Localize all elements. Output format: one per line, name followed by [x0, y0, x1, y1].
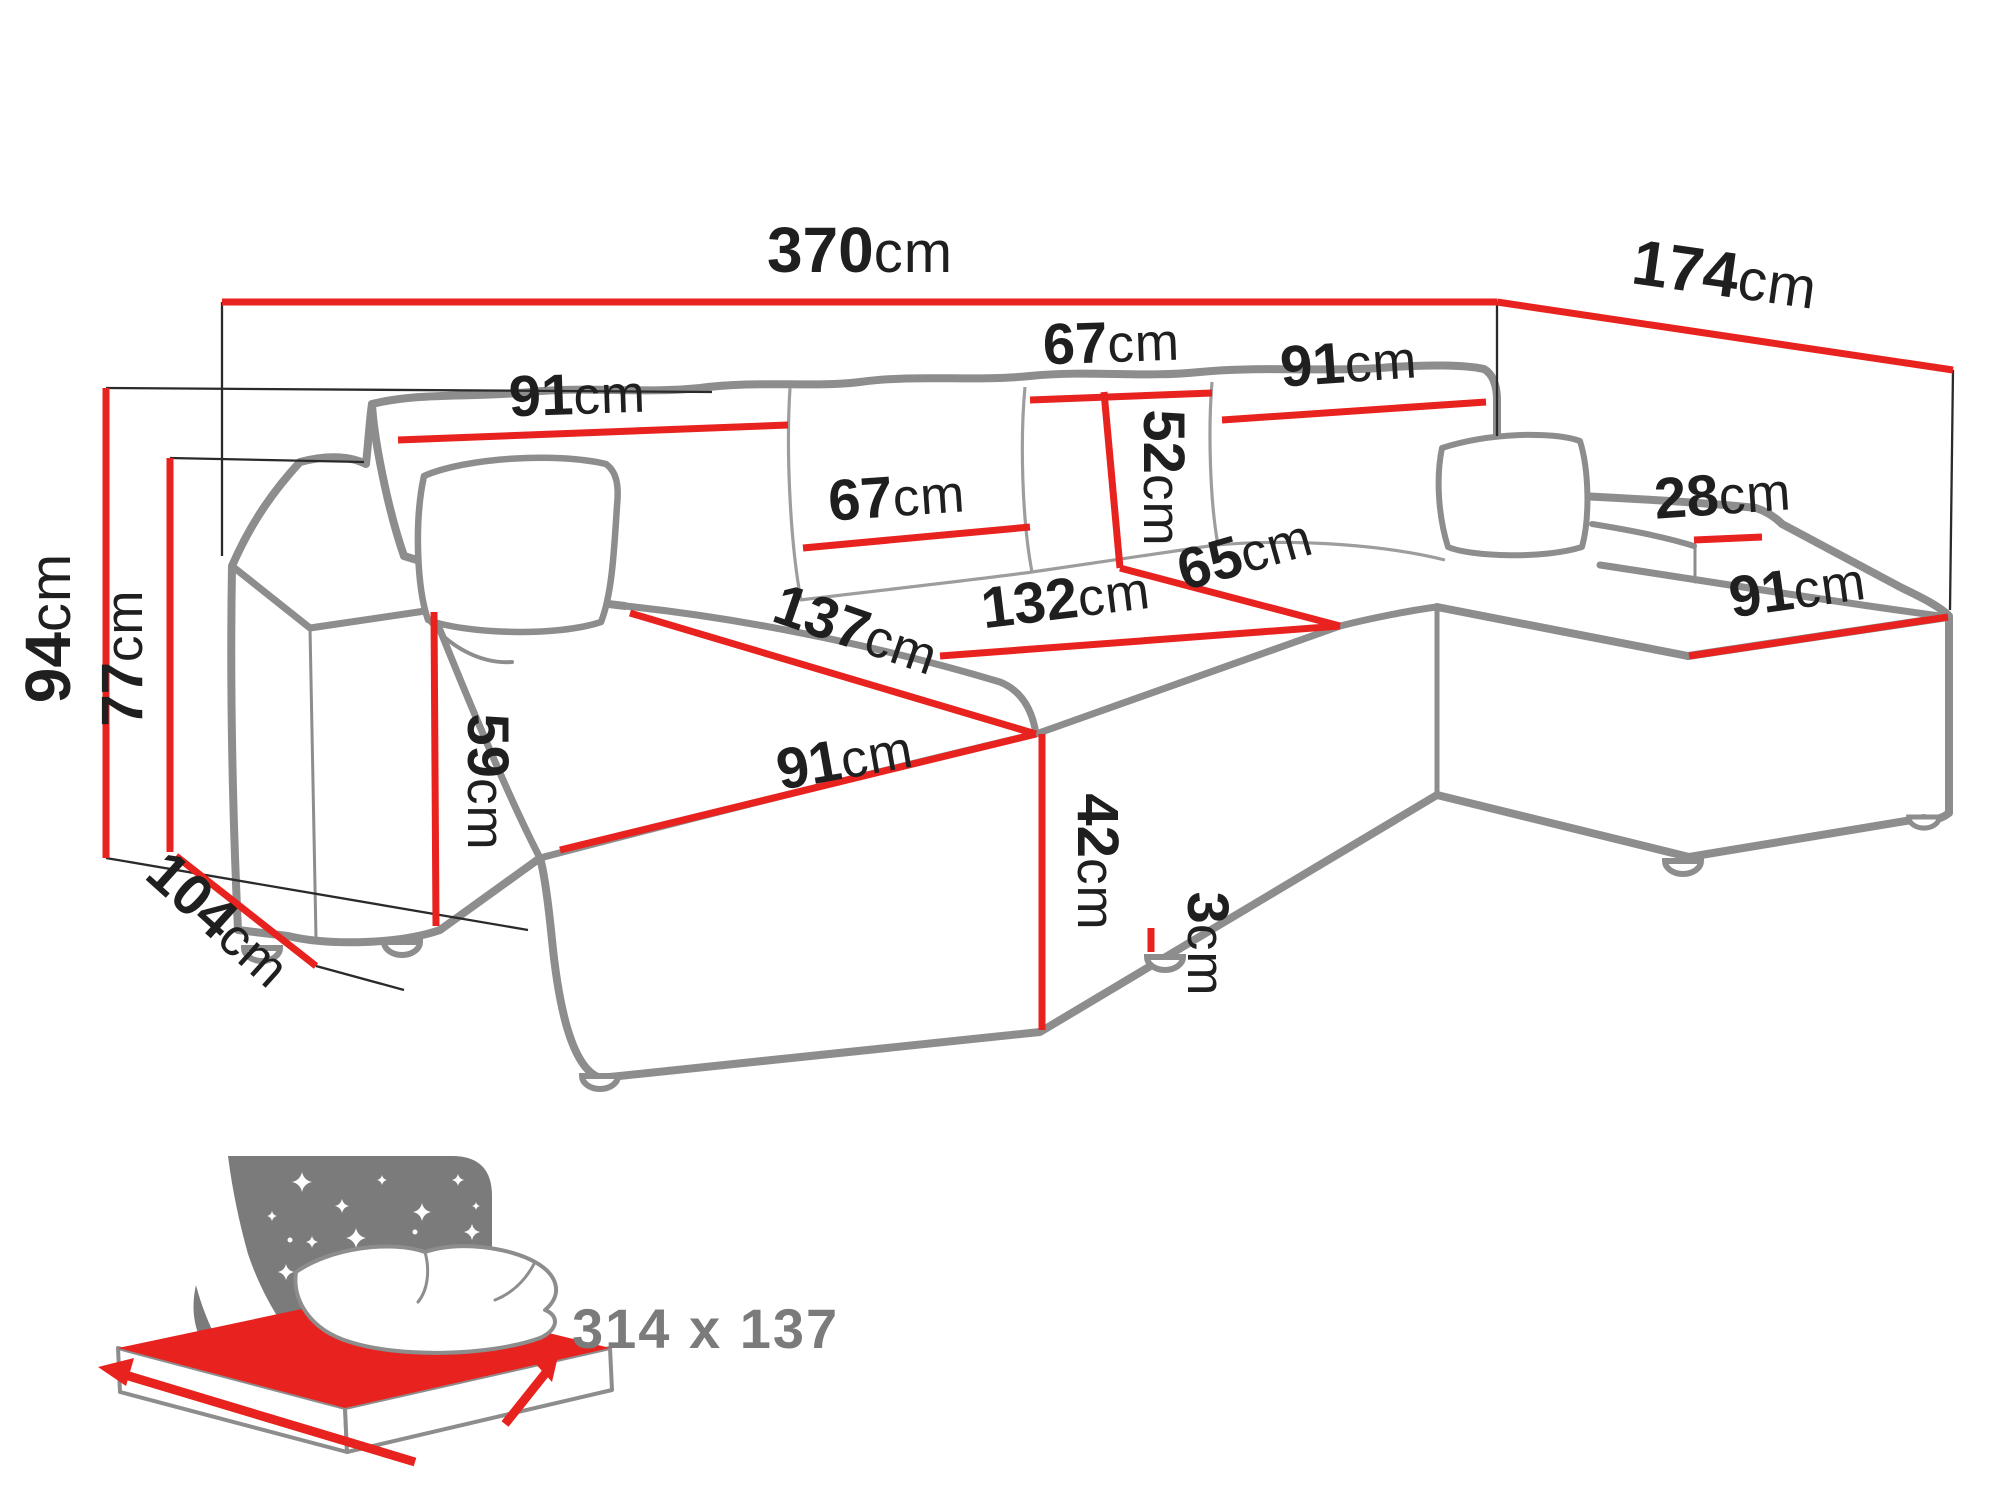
dim-label-backrest-right: 91cm [1278, 325, 1419, 399]
dim-label-side-height: 59cm [455, 713, 520, 850]
dim-label-total-width: 370cm [767, 214, 953, 286]
sleeping-area-icon: 314 x 137 [98, 1156, 839, 1462]
dim-label-cushion-mid: 67cm [826, 459, 967, 533]
dim-label-total-depth-right: 174cm [1628, 226, 1822, 323]
dim-label-leg-height: 3cm [1175, 892, 1240, 997]
dimension-line-side-height [434, 612, 436, 926]
dim-label-seat-height: 42cm [1065, 793, 1130, 930]
dim-label-backrest-left: 91cm [508, 360, 647, 430]
right-pillow [1439, 435, 1588, 555]
dim-label-total-height: 94cm [12, 553, 84, 704]
left-pillow [418, 458, 618, 632]
dim-label-cushion-top: 67cm [1042, 308, 1181, 378]
sofa-dimension-diagram: 370cm 174cm 94cm 77cm 104cm 91cm 67cm 67… [0, 0, 2000, 1500]
dimension-line-total-depth-right [1497, 302, 1953, 370]
dim-label-armrest-height: 77cm [90, 589, 155, 726]
dim-label-cushion-height: 52cm [1131, 409, 1196, 546]
dimension-line-right-armrest [1694, 537, 1762, 540]
sleeping-size-label: 314 x 137 [572, 1297, 839, 1360]
dim-label-right-armrest: 28cm [1652, 457, 1793, 531]
